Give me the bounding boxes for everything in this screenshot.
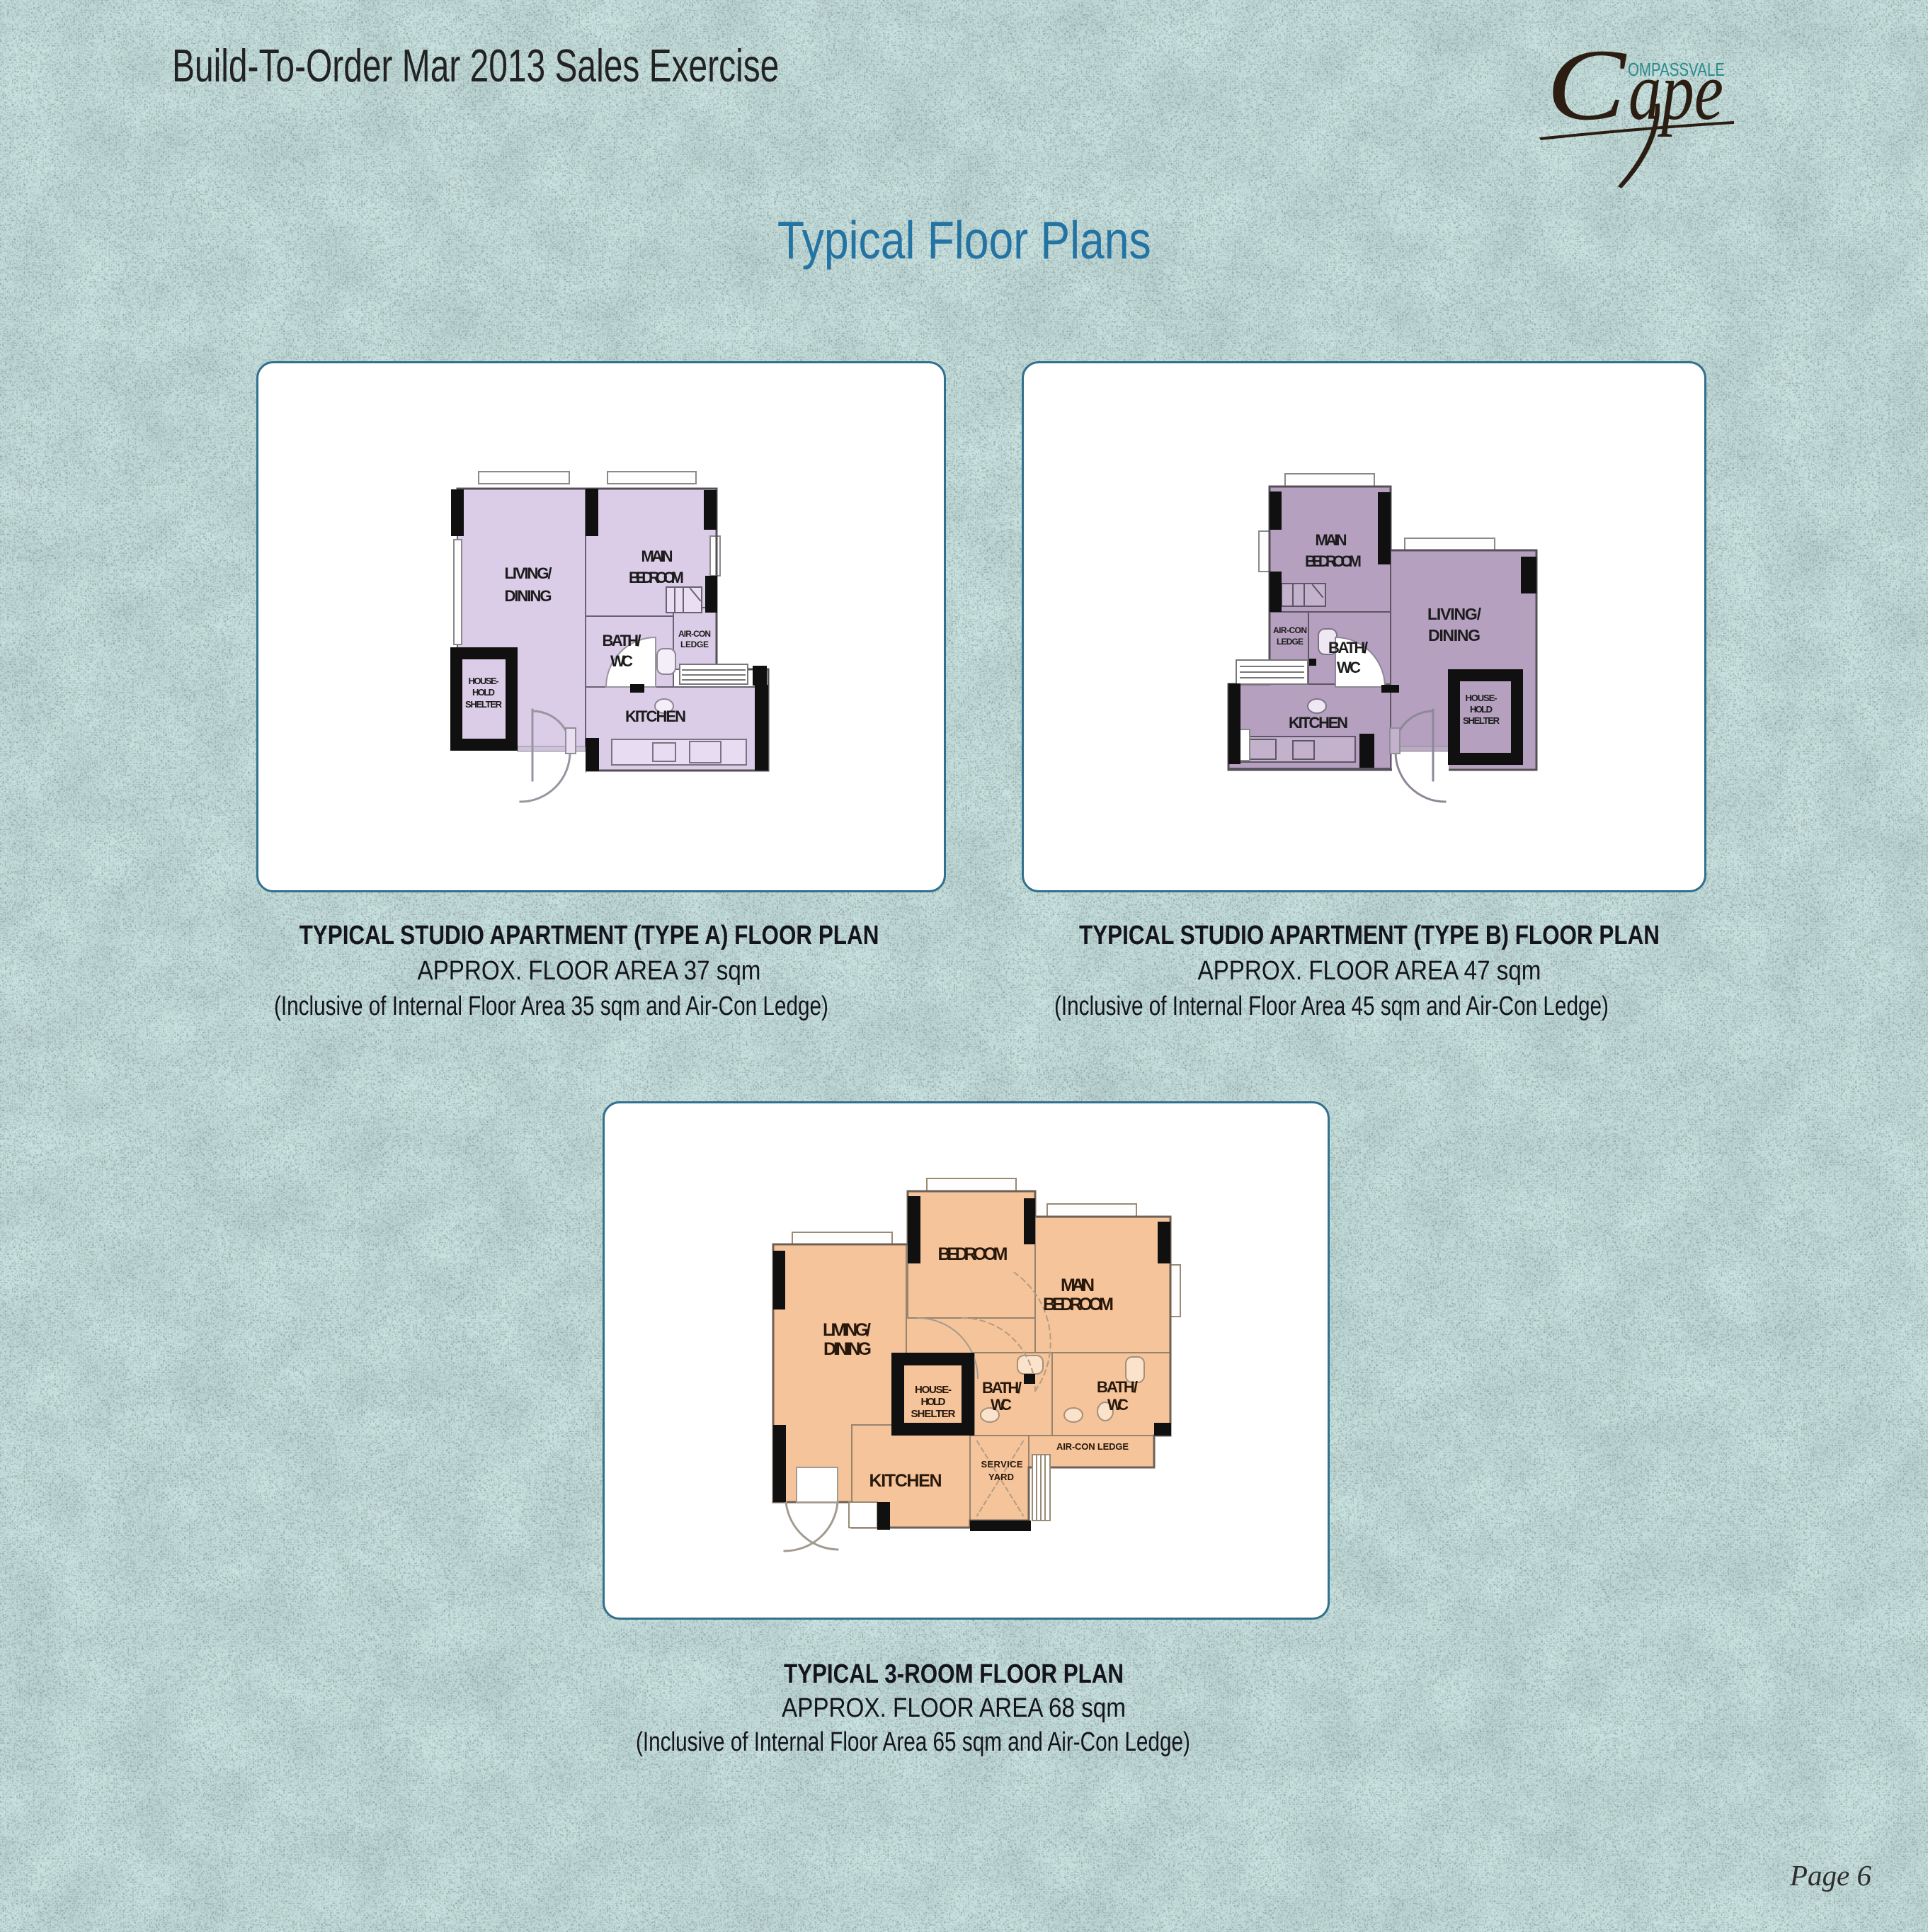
- svg-text:YARD: YARD: [988, 1472, 1014, 1482]
- svg-text:MAIN: MAIN: [1316, 531, 1347, 549]
- svg-text:HOLD: HOLD: [472, 687, 495, 698]
- svg-text:BEDROOM: BEDROOM: [1305, 552, 1362, 570]
- svg-text:KITCHEN: KITCHEN: [625, 708, 686, 725]
- svg-text:SHELTER: SHELTER: [911, 1408, 956, 1420]
- svg-text:AIR-CON: AIR-CON: [1273, 625, 1307, 635]
- svg-text:MAIN: MAIN: [641, 547, 673, 565]
- svg-text:WC: WC: [610, 652, 633, 670]
- svg-text:KITCHEN: KITCHEN: [869, 1471, 942, 1491]
- svg-text:WC: WC: [1337, 659, 1361, 676]
- svg-text:KITCHEN: KITCHEN: [1289, 714, 1348, 732]
- svg-text:BEDROOM: BEDROOM: [938, 1244, 1008, 1264]
- svg-text:HOUSE-: HOUSE-: [469, 676, 499, 686]
- svg-text:HOLD: HOLD: [1470, 704, 1493, 715]
- svg-text:LEDGE: LEDGE: [680, 640, 709, 649]
- svg-text:SHELTER: SHELTER: [465, 699, 503, 710]
- svg-text:LIVING/: LIVING/: [505, 564, 552, 582]
- svg-text:DINING: DINING: [1428, 626, 1481, 644]
- svg-text:BATH/: BATH/: [1097, 1378, 1138, 1396]
- svg-text:LIVING/: LIVING/: [1427, 605, 1482, 623]
- svg-text:BATH/: BATH/: [982, 1379, 1022, 1397]
- svg-text:BEDROOM: BEDROOM: [1043, 1295, 1114, 1314]
- svg-text:AIR-CON LEDGE: AIR-CON LEDGE: [1056, 1441, 1129, 1452]
- svg-text:HOUSE-: HOUSE-: [915, 1384, 952, 1396]
- svg-text:LIVING/: LIVING/: [823, 1320, 871, 1340]
- svg-text:DINING: DINING: [823, 1339, 872, 1359]
- svg-text:LEDGE: LEDGE: [1277, 637, 1304, 647]
- svg-text:SERVICE: SERVICE: [981, 1459, 1023, 1470]
- svg-text:WC: WC: [991, 1396, 1012, 1414]
- svg-text:HOLD: HOLD: [921, 1396, 946, 1408]
- svg-text:SHELTER: SHELTER: [1463, 715, 1500, 726]
- svg-text:AIR-CON: AIR-CON: [678, 629, 711, 639]
- svg-text:BATH/: BATH/: [1328, 639, 1368, 657]
- svg-text:WC: WC: [1107, 1396, 1129, 1414]
- svg-text:HOUSE-: HOUSE-: [1466, 693, 1498, 703]
- svg-text:BEDROOM: BEDROOM: [629, 569, 684, 586]
- svg-text:BATH/: BATH/: [603, 632, 641, 649]
- svg-text:DINING: DINING: [505, 587, 552, 605]
- svg-text:MAIN: MAIN: [1061, 1275, 1095, 1295]
